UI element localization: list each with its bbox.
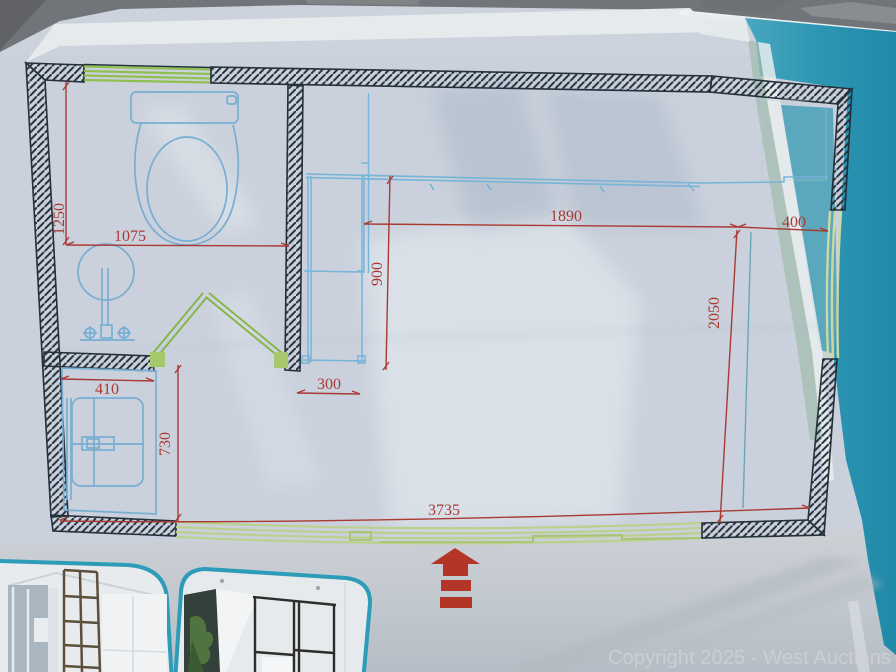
svg-text:2050: 2050 [706, 297, 723, 329]
svg-text:300: 300 [317, 376, 341, 393]
svg-text:1890: 1890 [550, 208, 582, 225]
svg-text:Copyright 2025 - West Auctions: Copyright 2025 - West Auctions [608, 646, 891, 669]
svg-text:3735: 3735 [428, 502, 460, 519]
svg-text:400: 400 [782, 214, 806, 231]
svg-text:1250: 1250 [51, 203, 68, 235]
svg-text:900: 900 [369, 262, 386, 286]
svg-text:410: 410 [95, 381, 119, 398]
svg-text:730: 730 [157, 432, 174, 456]
svg-text:1075: 1075 [114, 228, 146, 245]
